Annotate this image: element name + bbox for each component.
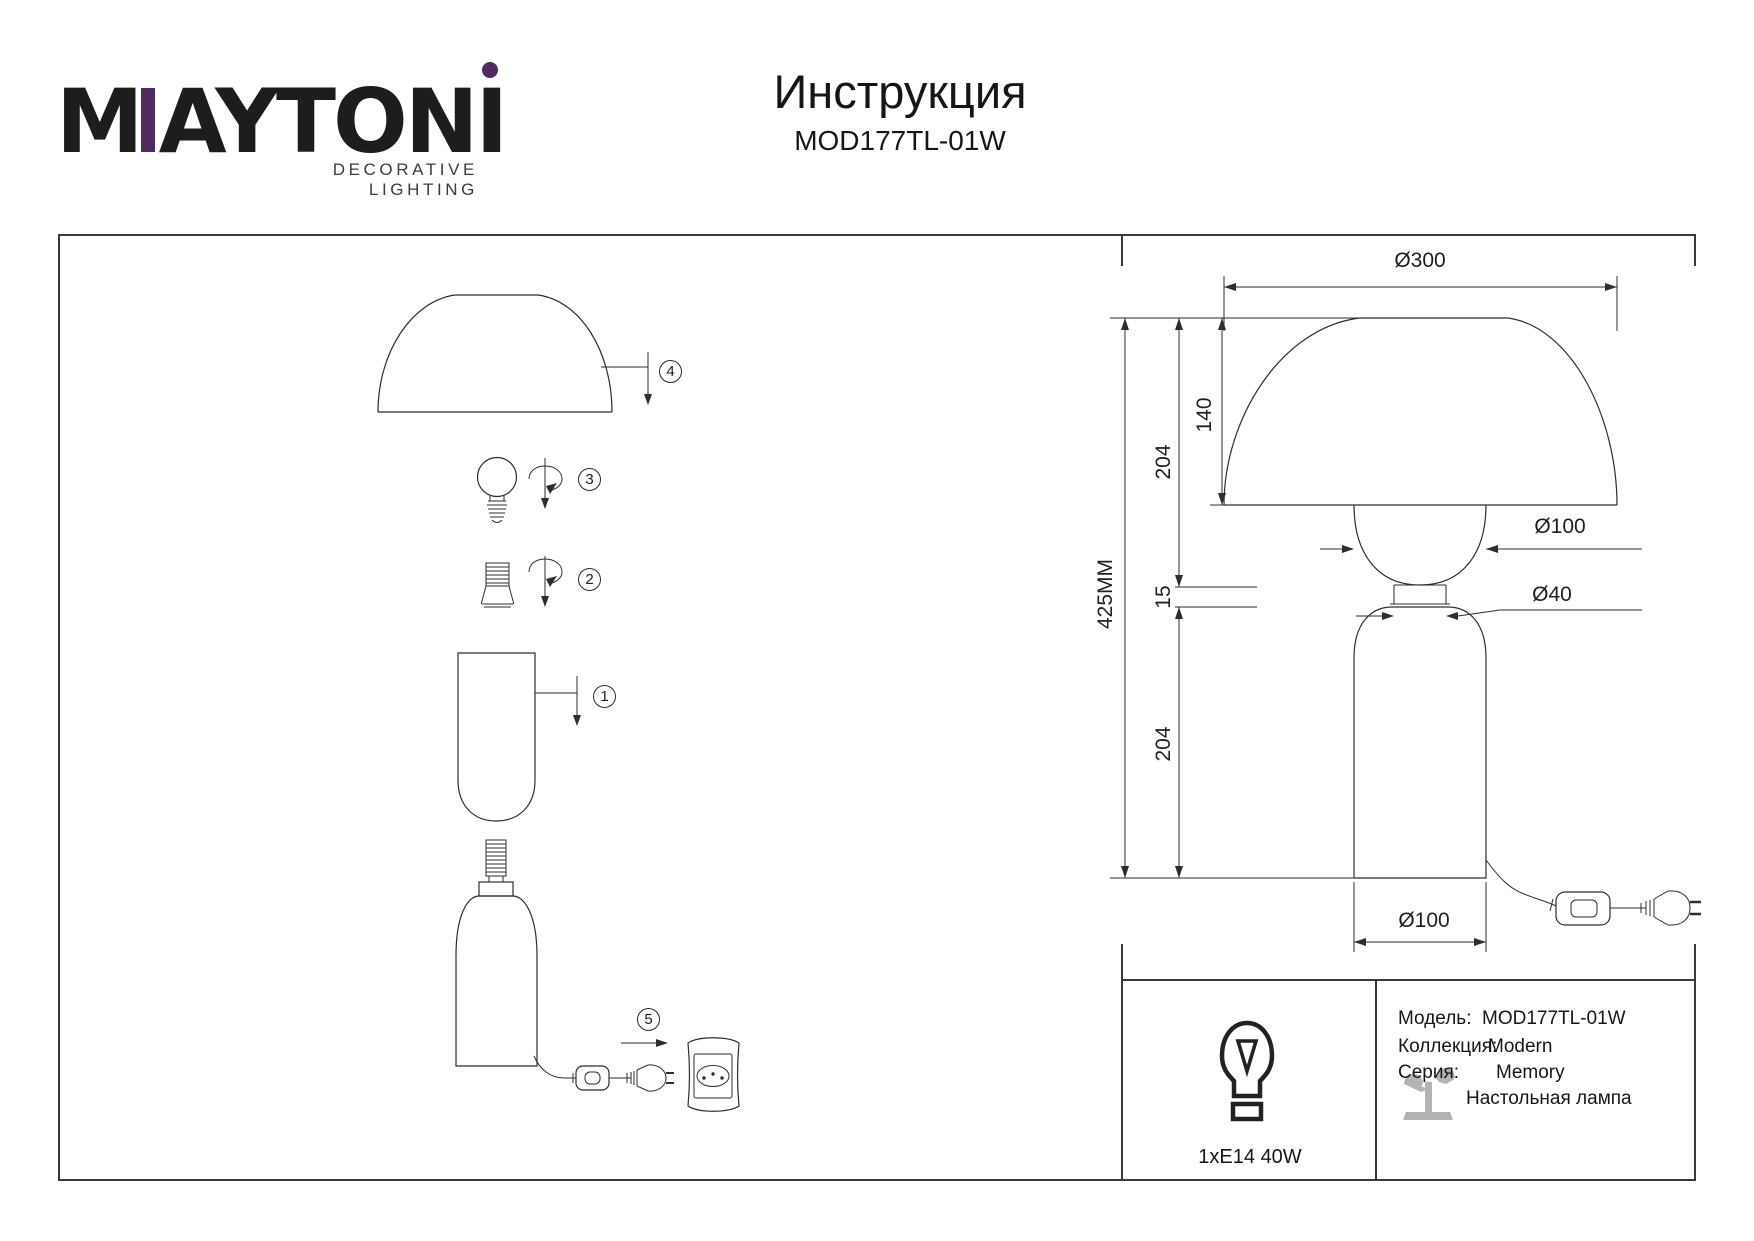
- step-badge-4: 4: [659, 360, 682, 383]
- shade-part-drawing: [378, 295, 652, 412]
- dim-shade-diameter: Ø300: [1360, 248, 1480, 274]
- dim-shade-height: 140: [1192, 355, 1218, 475]
- bulb-spec-caption: 1xE14 40W: [1175, 1146, 1325, 1169]
- bulb-spec-icon: [1222, 1023, 1272, 1119]
- spec-label-series: Серия:: [1398, 1062, 1459, 1084]
- base-part-drawing: [456, 840, 537, 1066]
- wall-socket-icon: [688, 1038, 739, 1112]
- dimension-lines: [1110, 276, 1642, 952]
- spec-value-collection: Modern: [1488, 1036, 1552, 1058]
- spec-label-collection: Коллекция:: [1398, 1036, 1497, 1058]
- bulb-part-drawing: [478, 458, 517, 523]
- socket-part-drawing: [481, 563, 513, 607]
- power-cord-drawing: [534, 1056, 631, 1090]
- step-badge-1: 1: [593, 685, 616, 708]
- insert-arrow-icon: [621, 1039, 668, 1047]
- glass-cylinder-part-drawing: [458, 653, 581, 821]
- dim-neck-diameter: Ø40: [1492, 582, 1612, 608]
- dim-glass-diameter: Ø100: [1500, 514, 1620, 540]
- step-badge-3: 3: [578, 468, 601, 491]
- step-badge-2: 2: [578, 568, 601, 591]
- dim-total-height: 425MM: [1093, 534, 1119, 654]
- rotate-arrow-icon: [529, 556, 562, 607]
- dim-base-diameter: Ø100: [1364, 908, 1484, 934]
- lamp-plug-icon: [1646, 891, 1701, 925]
- dim-gap: 15: [1151, 537, 1177, 657]
- spec-label-model: Модель:: [1398, 1008, 1471, 1030]
- dim-upper-height: 204: [1151, 402, 1177, 522]
- rotate-arrow-icon: [529, 458, 562, 509]
- spec-value-series: Memory: [1496, 1062, 1565, 1084]
- step-badge-5: 5: [637, 1008, 660, 1031]
- lamp-cord-drawing: [1486, 860, 1646, 925]
- spec-value-model: MOD177TL-01W: [1482, 1008, 1626, 1030]
- plug-icon: [631, 1065, 674, 1091]
- dim-lower-height: 204: [1151, 684, 1177, 804]
- spec-lamp-type: Настольная лампа: [1466, 1088, 1632, 1110]
